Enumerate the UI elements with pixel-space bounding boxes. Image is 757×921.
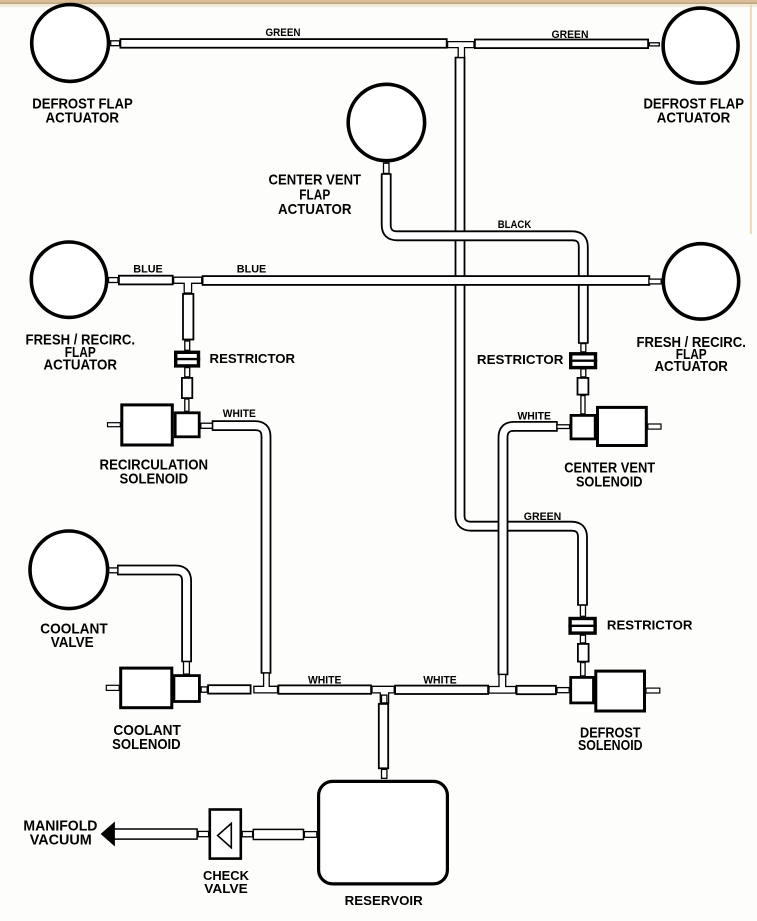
svg-text:VALVE: VALVE: [51, 634, 94, 651]
svg-text:WHITE: WHITE: [423, 674, 457, 686]
svg-text:RESTRICTOR: RESTRICTOR: [607, 618, 693, 633]
svg-text:BLACK: BLACK: [498, 219, 532, 231]
svg-text:SOLENOID: SOLENOID: [576, 473, 643, 490]
svg-text:GREEN: GREEN: [552, 29, 589, 41]
svg-text:BLUE: BLUE: [237, 263, 267, 275]
svg-text:WHITE: WHITE: [308, 674, 342, 686]
svg-text:ACTUATOR: ACTUATOR: [278, 201, 352, 218]
svg-text:RESERVOIR: RESERVOIR: [345, 893, 424, 908]
svg-text:GREEN: GREEN: [266, 27, 301, 39]
svg-text:RESTRICTOR: RESTRICTOR: [210, 351, 296, 366]
svg-text:SOLENOID: SOLENOID: [578, 737, 643, 754]
svg-text:ACTUATOR: ACTUATOR: [654, 358, 728, 375]
svg-text:VALVE: VALVE: [204, 881, 248, 896]
svg-text:SOLENOID: SOLENOID: [120, 471, 189, 488]
svg-text:ACTUATOR: ACTUATOR: [657, 109, 731, 126]
svg-text:WHITE: WHITE: [517, 410, 551, 422]
svg-text:WHITE: WHITE: [223, 408, 256, 420]
svg-text:BLUE: BLUE: [133, 263, 163, 275]
svg-text:RESTRICTOR: RESTRICTOR: [477, 352, 564, 367]
svg-text:ACTUATOR: ACTUATOR: [44, 356, 118, 373]
svg-text:VACUUM: VACUUM: [30, 832, 92, 849]
svg-text:SOLENOID: SOLENOID: [112, 736, 181, 753]
svg-text:GREEN: GREEN: [524, 511, 562, 523]
svg-text:ACTUATOR: ACTUATOR: [46, 109, 120, 126]
